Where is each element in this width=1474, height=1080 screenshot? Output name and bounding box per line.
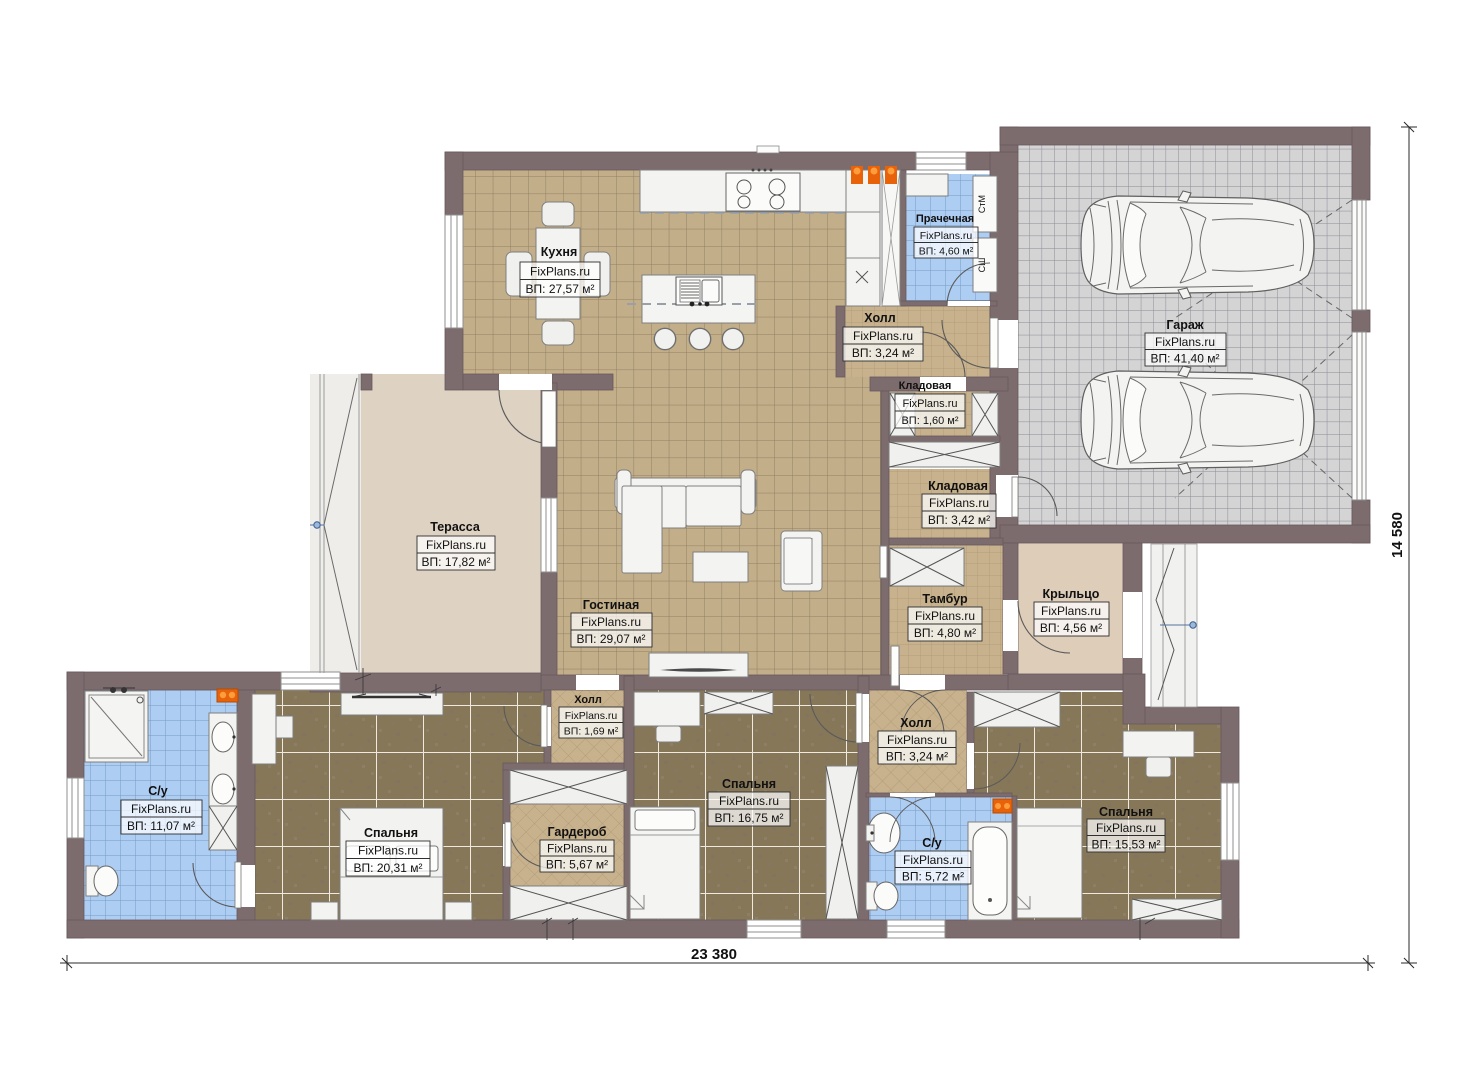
svg-text:14 580: 14 580 <box>1389 512 1406 558</box>
svg-text:С/у: С/у <box>922 836 942 850</box>
svg-text:FixPlans.ru: FixPlans.ru <box>903 853 963 867</box>
svg-text:FixPlans.ru: FixPlans.ru <box>547 842 607 856</box>
svg-text:ВП: 3,24 м²: ВП: 3,24 м² <box>886 750 948 764</box>
svg-text:ВП: 3,24 м²: ВП: 3,24 м² <box>852 346 914 360</box>
svg-text:ВП: 1,60 м²: ВП: 1,60 м² <box>901 415 958 427</box>
svg-text:FixPlans.ru: FixPlans.ru <box>1041 604 1101 618</box>
svg-text:Прачечная: Прачечная <box>916 213 974 225</box>
svg-text:ВП: 1,69 м²: ВП: 1,69 м² <box>564 726 619 738</box>
svg-text:FixPlans.ru: FixPlans.ru <box>358 844 418 858</box>
svg-text:Спальня: Спальня <box>1099 805 1153 819</box>
svg-text:Холл: Холл <box>900 716 931 730</box>
svg-text:Крыльцо: Крыльцо <box>1043 587 1100 601</box>
svg-text:FixPlans.ru: FixPlans.ru <box>719 794 779 808</box>
svg-text:ВП: 4,60 м²: ВП: 4,60 м² <box>919 246 974 258</box>
svg-text:ВП: 11,07 м²: ВП: 11,07 м² <box>127 819 195 833</box>
svg-text:ВП: 4,56 м²: ВП: 4,56 м² <box>1040 621 1102 635</box>
svg-text:FixPlans.ru: FixPlans.ru <box>530 265 590 279</box>
svg-text:Гараж: Гараж <box>1166 318 1203 332</box>
svg-text:FixPlans.ru: FixPlans.ru <box>426 538 486 552</box>
svg-text:ВП: 3,42 м²: ВП: 3,42 м² <box>928 513 990 527</box>
svg-text:СтМ: СтМ <box>977 195 987 213</box>
svg-text:Тамбур: Тамбур <box>922 592 968 606</box>
svg-text:FixPlans.ru: FixPlans.ru <box>131 802 191 816</box>
svg-text:FixPlans.ru: FixPlans.ru <box>902 398 957 410</box>
svg-text:FixPlans.ru: FixPlans.ru <box>581 615 641 629</box>
svg-text:ВП: 5,67 м²: ВП: 5,67 м² <box>546 858 608 872</box>
svg-text:FixPlans.ru: FixPlans.ru <box>915 609 975 623</box>
svg-text:С/у: С/у <box>148 784 168 798</box>
svg-text:Холл: Холл <box>574 694 602 706</box>
svg-text:Спальня: Спальня <box>722 777 776 791</box>
svg-text:ВП: 4,80 м²: ВП: 4,80 м² <box>914 626 976 640</box>
svg-text:FixPlans.ru: FixPlans.ru <box>1155 335 1215 349</box>
svg-text:Спальня: Спальня <box>364 826 418 840</box>
svg-text:ВП: 16,75 м²: ВП: 16,75 м² <box>715 811 784 825</box>
svg-text:Кладовая: Кладовая <box>899 380 952 392</box>
svg-text:FixPlans.ru: FixPlans.ru <box>887 733 947 747</box>
svg-text:ВП: 41,40 м²: ВП: 41,40 м² <box>1151 352 1220 366</box>
svg-text:FixPlans.ru: FixPlans.ru <box>565 710 618 722</box>
svg-text:ВП: 5,72 м²: ВП: 5,72 м² <box>902 870 964 884</box>
svg-text:23 380: 23 380 <box>691 946 737 963</box>
svg-text:ВП: 20,31 м²: ВП: 20,31 м² <box>354 861 423 875</box>
svg-text:Кладовая: Кладовая <box>928 479 988 493</box>
svg-text:Кухня: Кухня <box>541 245 578 259</box>
svg-text:FixPlans.ru: FixPlans.ru <box>920 230 973 242</box>
svg-text:Терасса: Терасса <box>430 520 481 534</box>
svg-text:Гостиная: Гостиная <box>583 598 640 612</box>
svg-text:FixPlans.ru: FixPlans.ru <box>1096 821 1156 835</box>
svg-text:ВП: 27,57 м²: ВП: 27,57 м² <box>526 282 595 296</box>
svg-text:FixPlans.ru: FixPlans.ru <box>853 329 913 343</box>
svg-text:ВП: 15,53 м²: ВП: 15,53 м² <box>1092 838 1161 852</box>
svg-text:ВП: 17,82 м²: ВП: 17,82 м² <box>422 555 491 569</box>
svg-text:Гардероб: Гардероб <box>547 825 606 839</box>
svg-text:ВП: 29,07 м²: ВП: 29,07 м² <box>577 632 646 646</box>
svg-text:Холл: Холл <box>864 311 895 325</box>
svg-text:FixPlans.ru: FixPlans.ru <box>929 496 989 510</box>
